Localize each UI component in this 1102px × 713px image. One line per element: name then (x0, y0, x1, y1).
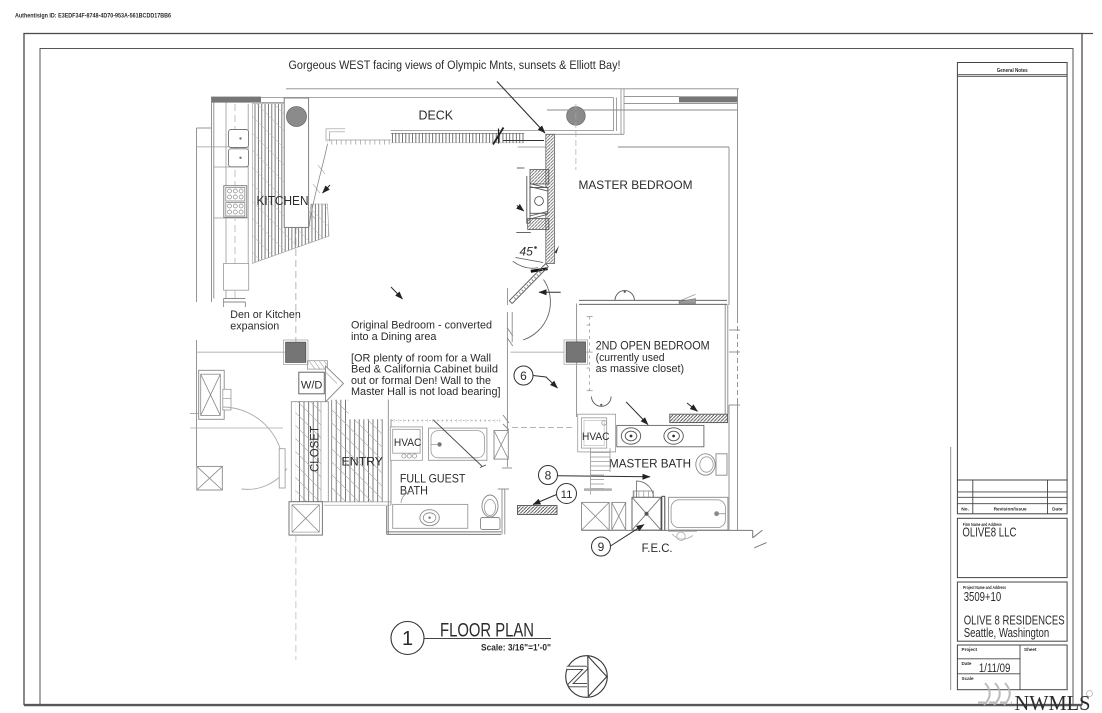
svg-text:(currently used: (currently used (596, 352, 665, 364)
svg-text:Scale: Scale (962, 676, 974, 681)
svg-text:1: 1 (402, 628, 413, 650)
svg-text:out or formal Den! Wall to the: out or formal Den! Wall to the (351, 375, 491, 387)
svg-text:FLOOR PLAN: FLOOR PLAN (440, 620, 534, 641)
svg-text:No.: No. (961, 507, 969, 513)
svg-text:HVAC: HVAC (394, 437, 422, 449)
svg-text:Scale: 3/16"=1'-0": Scale: 3/16"=1'-0" (481, 643, 551, 653)
svg-text:Project: Project (962, 647, 978, 652)
svg-text:Master Hall is not load bearin: Master Hall is not load bearing] (351, 386, 501, 398)
svg-text:HVAC: HVAC (582, 431, 610, 443)
svg-text:Den or Kitchen: Den or Kitchen (230, 309, 300, 321)
svg-text:9: 9 (598, 540, 605, 554)
svg-text:Original Bedroom - converted: Original Bedroom - converted (351, 320, 492, 332)
svg-text:Bed & California Cabinet build: Bed & California Cabinet build (351, 364, 498, 376)
svg-text:Gorgeous WEST facing views of: Gorgeous WEST facing views of Olympic Mn… (289, 58, 621, 72)
svg-text:ENTRY: ENTRY (342, 455, 384, 469)
svg-text:General Notes: General Notes (997, 68, 1028, 74)
svg-text:as massive closet): as massive closet) (596, 363, 685, 375)
svg-text:KITCHEN: KITCHEN (257, 194, 309, 208)
svg-text:6: 6 (520, 369, 527, 383)
svg-text:MASTER BATH: MASTER BATH (609, 457, 691, 471)
svg-text:Sheet: Sheet (1024, 647, 1037, 652)
svg-text:W/D: W/D (301, 379, 323, 391)
svg-text:8: 8 (545, 468, 552, 482)
svg-text:Authentisign ID: E3EDF34F-8748: Authentisign ID: E3EDF34F-8748-4D70-953A… (15, 13, 171, 20)
svg-text:expansion: expansion (230, 320, 279, 332)
svg-text:F.E.C.: F.E.C. (642, 542, 673, 555)
svg-text:MASTER BEDROOM: MASTER BEDROOM (579, 178, 693, 192)
svg-text:2ND OPEN BEDROOM: 2ND OPEN BEDROOM (596, 339, 710, 353)
svg-text:[OR plenty of room for a Wall: [OR plenty of room for a Wall (351, 352, 491, 364)
svg-text:OLIVE8 LLC: OLIVE8 LLC (962, 524, 1016, 539)
svg-text:Date: Date (1052, 507, 1063, 513)
svg-text:1/11/09: 1/11/09 (979, 661, 1011, 675)
svg-text:3509+10: 3509+10 (964, 589, 1002, 604)
svg-text:CLOSET: CLOSET (308, 425, 322, 472)
svg-text:NWMLS: NWMLS (1015, 691, 1091, 713)
svg-text:Date: Date (962, 661, 972, 666)
svg-text:DECK: DECK (419, 109, 454, 123)
svg-text:Seattle, Washington: Seattle, Washington (964, 626, 1049, 640)
svg-text:Revision/Issue: Revision/Issue (994, 507, 1027, 513)
svg-text:into a Dining area: into a Dining area (351, 331, 437, 343)
svg-text:11: 11 (561, 489, 573, 501)
svg-text:45: 45 (520, 245, 534, 259)
